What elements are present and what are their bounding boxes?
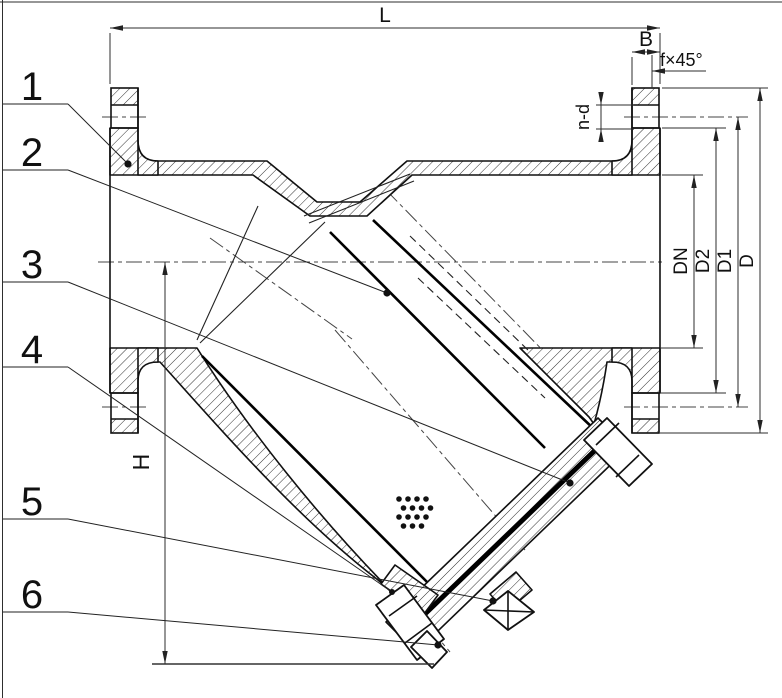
callout-6: 6 [3, 573, 442, 649]
left-flange-bottom-block [110, 348, 158, 393]
right-top-bolt-hatch [632, 88, 659, 105]
dimension-D: D [737, 88, 763, 433]
dim-label-D: D [737, 254, 758, 268]
callout-1-number: 1 [21, 65, 43, 109]
dimension-L: L [110, 4, 660, 84]
valve-body [138, 161, 632, 598]
screen-edge-lower [202, 356, 437, 592]
left-flange-top-block [110, 128, 158, 175]
screen-cone-line-1 [197, 206, 258, 340]
dim-label-B: B [639, 28, 653, 51]
callout-3-dot [566, 479, 573, 486]
branch-left-curved-wall [138, 348, 398, 598]
dim-label-H: H [128, 454, 154, 471]
y-strainer-sectional-view: L B f×45° n-d DN [0, 0, 782, 698]
diagonal-centerline-b [386, 190, 560, 368]
left-top-bolt-hatch [111, 88, 138, 105]
diagonal-centerline-a [210, 238, 352, 339]
bonnet-cap-assembly [376, 418, 652, 668]
screen-edge-right [373, 220, 595, 430]
screen-edge-upper [330, 232, 545, 448]
dim-label-D1: D1 [715, 249, 736, 273]
callout-2-dot [383, 289, 390, 296]
callout-3: 3 [3, 243, 574, 487]
callout-2-number: 2 [21, 131, 43, 175]
dimension-diameters: DN D2 D1 D [660, 88, 768, 433]
dim-label-bolt-holes: n-d [573, 104, 593, 130]
screen-cone-line-2 [200, 222, 325, 343]
y-strainer-drawing-page: L B f×45° n-d DN [0, 0, 782, 698]
left-bottom-bolt-hatch [111, 419, 138, 433]
dimension-B: B [632, 28, 660, 85]
right-flange [612, 88, 660, 433]
screen-mesh-symbol [396, 496, 433, 529]
callout-6-number: 6 [21, 573, 43, 617]
callout-4-number: 4 [21, 328, 43, 372]
callout-5-dot [489, 597, 496, 604]
dim-label-D2: D2 [693, 249, 714, 273]
callout-4-dot [389, 589, 395, 595]
right-bottom-bolt-hatch [632, 419, 659, 433]
right-flange-top-block [612, 128, 660, 175]
callout-3-number: 3 [21, 243, 43, 287]
pipe-top-wall [138, 161, 632, 216]
callout-5-number: 5 [21, 480, 43, 524]
callout-6-dot [434, 641, 441, 648]
dim-label-chamfer: f×45° [660, 50, 703, 70]
dim-label-L: L [379, 4, 391, 27]
screen-hidden-line-1 [410, 236, 530, 352]
left-flange [110, 88, 158, 433]
right-flange-bottom-block [612, 348, 660, 393]
dim-label-DN: DN [671, 247, 692, 274]
callout-1-dot [124, 160, 131, 167]
